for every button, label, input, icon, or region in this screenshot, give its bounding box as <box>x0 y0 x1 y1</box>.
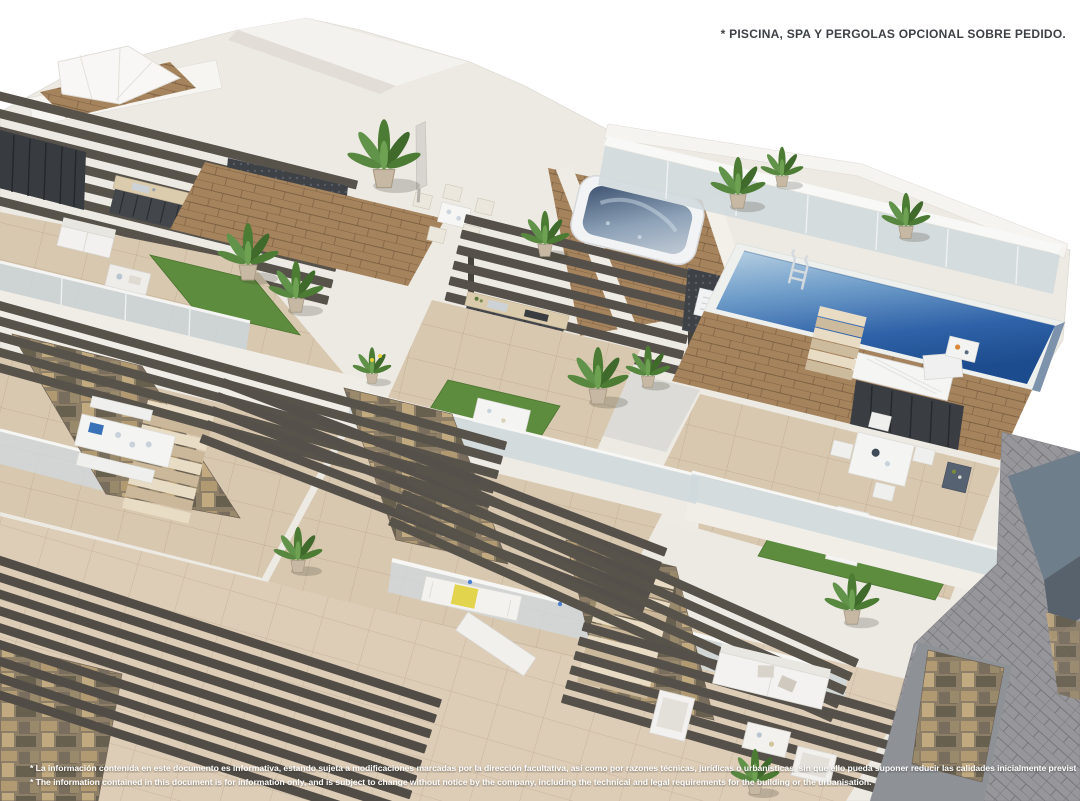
architectural-render <box>0 0 1080 801</box>
disclaimer-english: * The information contained in this docu… <box>30 777 1076 787</box>
optional-features-note: * PISCINA, SPA Y PERGOLAS OPCIONAL SOBRE… <box>721 27 1066 41</box>
disclaimer-spanish: * La información contenida en este docum… <box>30 763 1076 773</box>
render-page: * PISCINA, SPA Y PERGOLAS OPCIONAL SOBRE… <box>0 0 1080 801</box>
